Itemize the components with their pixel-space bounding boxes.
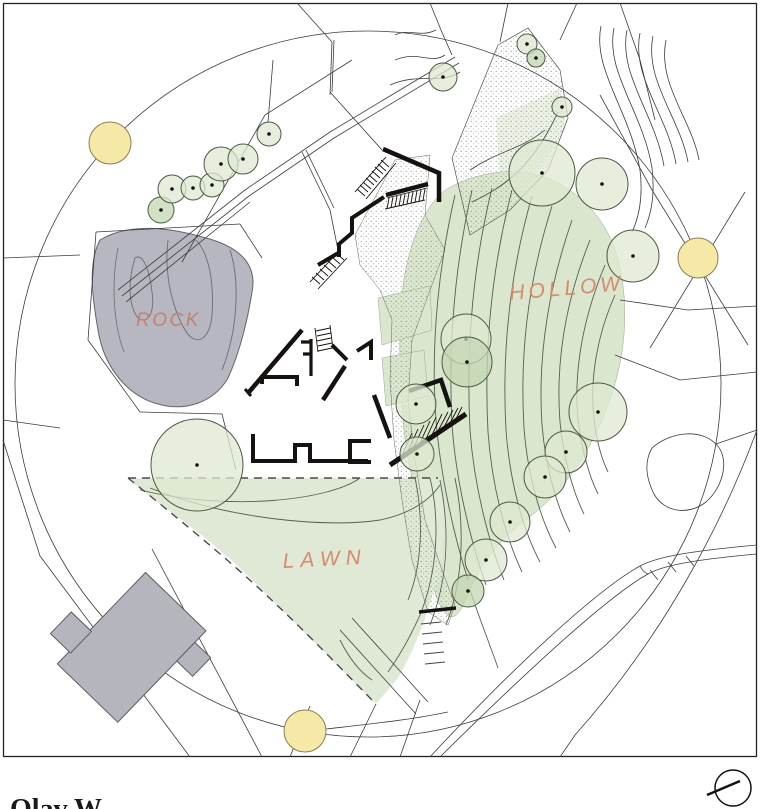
tree-trunk-dot	[560, 105, 564, 109]
tree-trunk-dot	[465, 360, 469, 364]
tree-trunk-dot	[508, 520, 512, 524]
tree-trunk-dot	[631, 254, 635, 258]
tree-trunk-dot	[159, 208, 163, 212]
yellow-marker	[89, 122, 131, 164]
tree-trunk-dot	[466, 589, 470, 593]
scanned-site-plan-page: ROCK HOLLOW LAWN Olav W	[0, 0, 761, 809]
yellow-marker	[678, 238, 718, 278]
tree-trunk-dot	[543, 475, 547, 479]
stair-house	[315, 325, 333, 352]
yellow-marker	[284, 710, 326, 752]
tree-trunk-dot	[534, 56, 538, 60]
tree-trunk-dot	[441, 75, 445, 79]
tree-trunk-dot	[540, 171, 544, 175]
tree-trunk-dot	[195, 463, 199, 467]
lawn-area	[128, 478, 444, 704]
tree-trunk-dot	[170, 187, 174, 191]
tree-trunk-dot	[241, 157, 245, 161]
neighbor-building	[39, 554, 222, 737]
tree-trunk-dot	[210, 183, 214, 187]
tree-trunk-dot	[484, 558, 488, 562]
tree-trunk-dot	[414, 402, 418, 406]
tree-trunk-dot	[415, 452, 419, 456]
tree-trunk-dot	[600, 182, 604, 186]
tree-trunk-dot	[596, 410, 600, 414]
road-inner-line	[440, 554, 757, 757]
lawn-label: LAWN	[282, 546, 367, 573]
site-plan-drawing: ROCK HOLLOW LAWN Olav W	[0, 0, 761, 809]
rock-label: ROCK	[136, 310, 201, 331]
tree-trunk-dot	[219, 162, 223, 166]
tree-trunk-dot	[564, 450, 568, 454]
orientation-symbol	[707, 770, 751, 806]
tree-trunk-dot	[267, 132, 271, 136]
caption: Olav W	[10, 794, 102, 809]
tree-trunk-dot	[191, 186, 195, 190]
tree-trunk-dot	[525, 42, 529, 46]
